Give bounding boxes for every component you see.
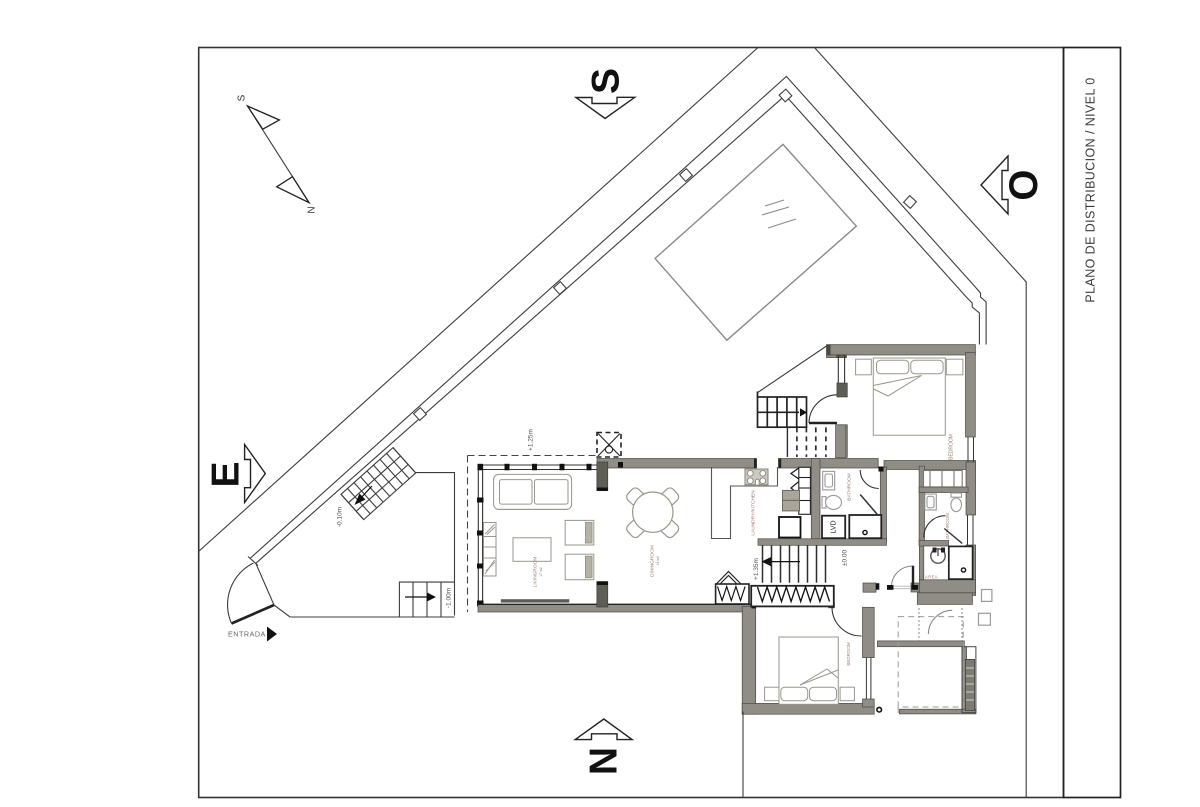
svg-text:DININGROOM: DININGROOM xyxy=(649,545,655,577)
svg-text:+1.25m: +1.25m xyxy=(528,429,535,451)
svg-text:-0.10m: -0.10m xyxy=(337,507,344,527)
svg-text:ENTRADA: ENTRADA xyxy=(228,630,266,639)
svg-text:AREA: AREA xyxy=(925,575,938,580)
svg-text:PLANO DE DISTRIBUCION / NIVEL: PLANO DE DISTRIBUCION / NIVEL 0 xyxy=(1083,77,1097,302)
svg-text:N: N xyxy=(582,747,625,775)
svg-text:+1.35m: +1.35m xyxy=(753,558,760,580)
svg-text:-1.00m: -1.00m xyxy=(446,588,453,608)
svg-text:LIVINGROOM: LIVINGROOM xyxy=(532,557,538,588)
svg-text:LAUNDRY/KITCHEN: LAUNDRY/KITCHEN xyxy=(750,490,756,536)
svg-text:P.BEDROOM: P.BEDROOM xyxy=(948,434,954,464)
svg-text:O: O xyxy=(1002,169,1046,200)
svg-text:S: S xyxy=(237,94,248,101)
svg-text:BEDROOM: BEDROOM xyxy=(846,642,851,666)
svg-text:N: N xyxy=(307,206,318,213)
svg-text:17 m2: 17 m2 xyxy=(539,567,543,577)
svg-text:BATHROOM: BATHROOM xyxy=(846,473,852,500)
svg-text:±0.00: ±0.00 xyxy=(842,550,849,567)
svg-text:LVD: LVD xyxy=(831,520,838,533)
svg-text:E: E xyxy=(204,461,247,487)
svg-text:BATHROOM: BATHROOM xyxy=(945,513,950,539)
svg-text:S: S xyxy=(584,68,627,94)
svg-text:14 m2: 14 m2 xyxy=(656,556,660,566)
